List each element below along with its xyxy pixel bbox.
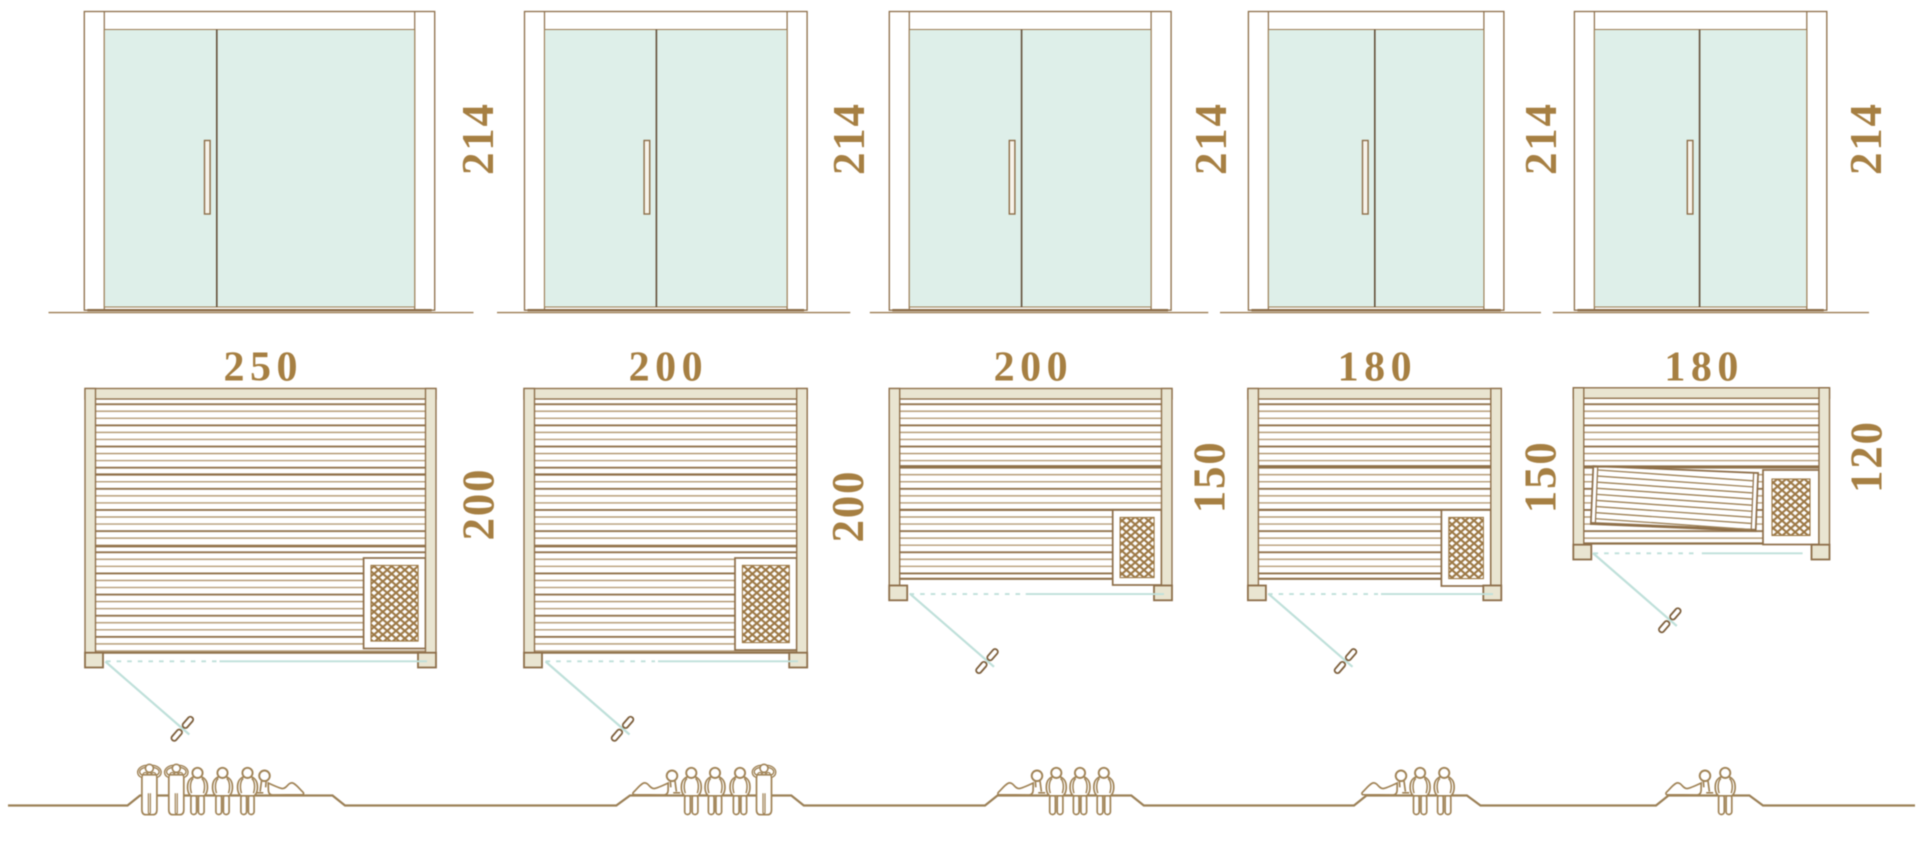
svg-text:250: 250 [224, 344, 298, 390]
svg-text:200: 200 [629, 344, 703, 390]
svg-text:214: 214 [453, 104, 503, 175]
svg-text:180: 180 [1338, 344, 1412, 390]
svg-text:214: 214 [1516, 104, 1566, 175]
svg-text:180: 180 [1664, 344, 1738, 390]
svg-text:120: 120 [1842, 422, 1892, 493]
svg-text:214: 214 [1186, 104, 1236, 175]
svg-text:200: 200 [994, 344, 1068, 390]
svg-text:200: 200 [453, 470, 503, 541]
svg-text:214: 214 [824, 104, 874, 175]
svg-text:150: 150 [1516, 442, 1566, 513]
svg-text:214: 214 [1841, 104, 1891, 175]
svg-text:150: 150 [1184, 442, 1234, 513]
svg-text:200: 200 [823, 472, 873, 543]
